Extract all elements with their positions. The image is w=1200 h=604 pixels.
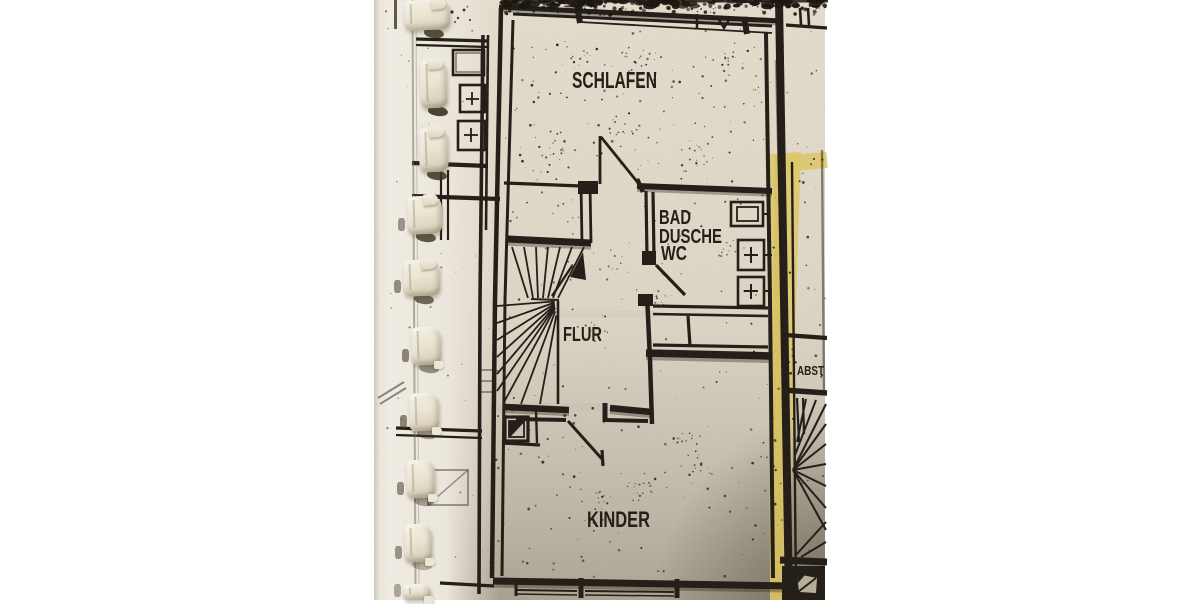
svg-text:FLUR: FLUR (563, 324, 602, 346)
svg-text:KINDER: KINDER (587, 507, 650, 532)
svg-text:WC: WC (661, 243, 687, 265)
svg-text:ABST: ABST (797, 363, 824, 378)
svg-text:SCHLAFEN: SCHLAFEN (572, 67, 657, 93)
